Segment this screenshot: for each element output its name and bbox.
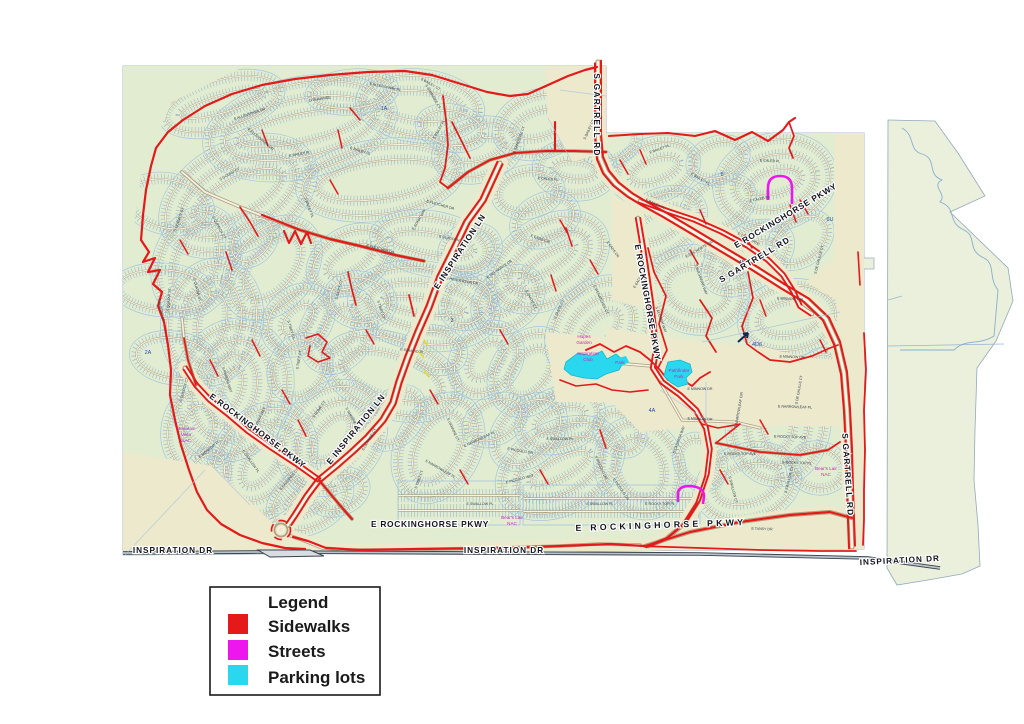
svg-text:E SWALLOW PL: E SWALLOW PL [586, 502, 613, 506]
svg-text:E ROCKINGHORSE PKWY: E ROCKINGHORSE PKWY [371, 519, 489, 529]
svg-text:Sidewalks: Sidewalks [268, 617, 350, 636]
svg-text:3: 3 [450, 318, 453, 324]
svg-text:Inspiration: Inspiration [577, 351, 599, 356]
svg-text:E ROCKY TOP AVE: E ROCKY TOP AVE [724, 452, 757, 456]
svg-text:E MINNOW DR: E MINNOW DR [688, 387, 713, 391]
svg-text:Park: Park [674, 374, 684, 379]
svg-text:Hopes: Hopes [577, 334, 591, 339]
svg-text:4A: 4A [649, 408, 656, 414]
svg-text:INSPIRATION DR: INSPIRATION DR [464, 546, 544, 555]
svg-text:Bear's Lair: Bear's Lair [501, 515, 523, 520]
svg-text:2A: 2A [145, 350, 152, 356]
svg-text:INSPIRATION DR: INSPIRATION DR [133, 546, 213, 555]
svg-text:E ROCKY TOP PL: E ROCKY TOP PL [645, 502, 675, 506]
svg-text:6U: 6U [826, 217, 833, 223]
svg-text:Parking lots: Parking lots [268, 668, 365, 687]
svg-text:E TANSY DR: E TANSY DR [751, 527, 773, 532]
svg-text:Club: Club [583, 357, 593, 362]
svg-text:NAC: NAC [181, 438, 191, 443]
svg-text:E SWALLOW PL: E SWALLOW PL [546, 437, 573, 441]
svg-text:Streets: Streets [268, 642, 326, 661]
svg-text:4D6: 4D6 [752, 342, 762, 348]
svg-text:Park: Park [615, 360, 625, 365]
svg-text:5: 5 [720, 172, 723, 178]
svg-text:Garden: Garden [576, 340, 592, 345]
svg-text:Vista: Vista [181, 432, 192, 437]
svg-text:Legend: Legend [268, 593, 328, 612]
svg-text:NAC: NAC [507, 521, 517, 526]
svg-text:Pathfinder: Pathfinder [669, 368, 690, 373]
svg-text:Mountain: Mountain [177, 426, 196, 431]
svg-text:Bear's Lair: Bear's Lair [815, 466, 837, 471]
svg-text:NAC: NAC [821, 472, 831, 477]
svg-text:E SWALLOW PL: E SWALLOW PL [466, 502, 493, 506]
svg-text:S GARTRELL RD: S GARTRELL RD [592, 73, 602, 156]
svg-text:1A: 1A [381, 106, 388, 112]
